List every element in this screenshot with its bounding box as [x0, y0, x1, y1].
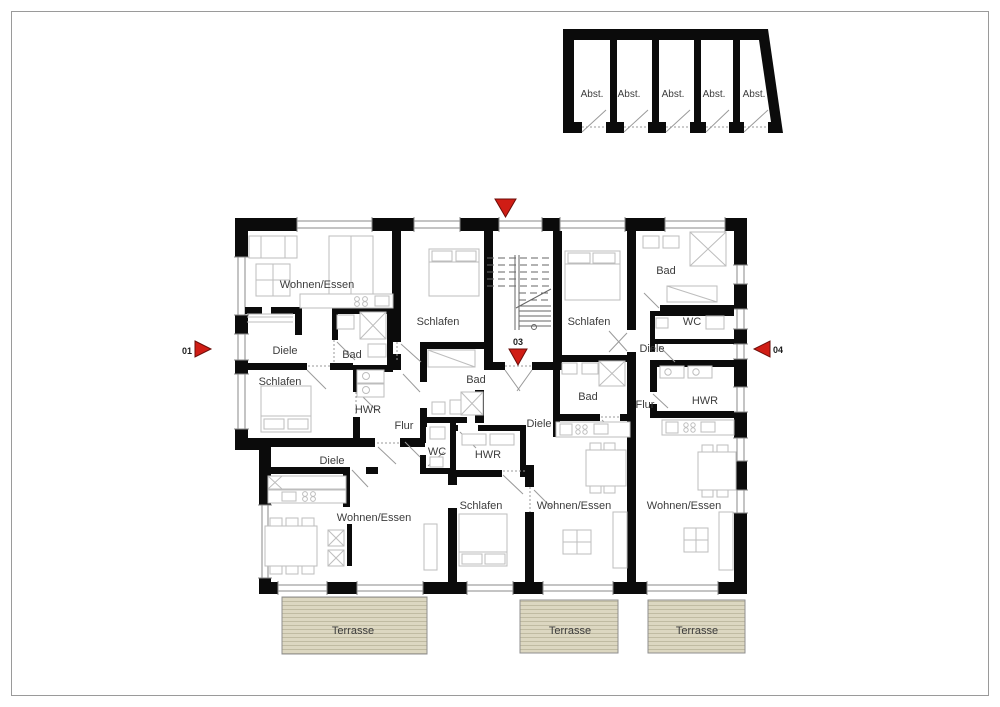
terrace-label: Terrasse	[549, 625, 591, 637]
room-label-flur: Flur	[395, 420, 414, 432]
room-label-diele: Diele	[319, 455, 344, 467]
room-label-wc: WC	[683, 316, 701, 328]
room-label-schlafen: Schlafen	[568, 316, 611, 328]
entrance-marker-03: 03	[509, 337, 527, 365]
room-label-hwr: HWR	[355, 404, 381, 416]
room-label-bad: Bad	[578, 391, 598, 403]
room-label-diele: Diele	[272, 345, 297, 357]
room-label-hwr: HWR	[475, 449, 501, 461]
room-label-hwr: HWR	[692, 395, 718, 407]
terrace-label: Terrasse	[676, 625, 718, 637]
marker-04-arrow-icon	[754, 341, 770, 357]
floor-plan-drawing: Abst. Abst. Abst. Abst. Abst. Terrasse T…	[0, 0, 1000, 707]
room-label-wohnen-essen: Wohnen/Essen	[647, 500, 721, 512]
marker-01-label: 01	[182, 346, 192, 356]
room-label-schlafen: Schlafen	[259, 376, 302, 388]
room-label-wohnen-essen: Wohnen/Essen	[337, 512, 411, 524]
room-label-wc: WC	[428, 446, 446, 458]
entrance-marker-04: 04	[754, 341, 783, 357]
storage-unit-label: Abst.	[581, 89, 604, 100]
entrance-marker-01: 01	[182, 341, 211, 357]
storage-unit-label: Abst.	[618, 89, 641, 100]
room-label-wohnen-essen: Wohnen/Essen	[280, 279, 354, 291]
storage-unit-label: Abst.	[743, 89, 766, 100]
room-label-bad: Bad	[656, 265, 676, 277]
marker-01-arrow-icon	[195, 341, 211, 357]
room-label-bad: Bad	[342, 349, 362, 361]
room-label-flur: Flur	[636, 399, 655, 411]
floor-plan-page: Abst. Abst. Abst. Abst. Abst. Terrasse T…	[0, 0, 1000, 707]
marker-03-arrow-icon	[509, 349, 527, 365]
room-label-diele: Diele	[526, 418, 551, 430]
storage-unit-label: Abst.	[662, 89, 685, 100]
room-label-schlafen: Schlafen	[460, 500, 503, 512]
marker-03-label: 03	[513, 337, 523, 347]
terrace-label: Terrasse	[332, 625, 374, 637]
staircase	[487, 255, 551, 330]
terraces: Terrasse Terrasse Terrasse	[282, 597, 745, 654]
room-label-wohnen-essen: Wohnen/Essen	[537, 500, 611, 512]
room-label-bad: Bad	[466, 374, 486, 386]
storage-building: Abst. Abst. Abst. Abst. Abst.	[563, 29, 783, 133]
entrance-marker-top	[495, 199, 516, 217]
room-label-schlafen: Schlafen	[417, 316, 460, 328]
marker-top-arrow-icon	[495, 199, 516, 217]
storage-unit-label: Abst.	[703, 89, 726, 100]
room-label-diele: Diele	[639, 343, 664, 355]
marker-04-label: 04	[773, 345, 783, 355]
